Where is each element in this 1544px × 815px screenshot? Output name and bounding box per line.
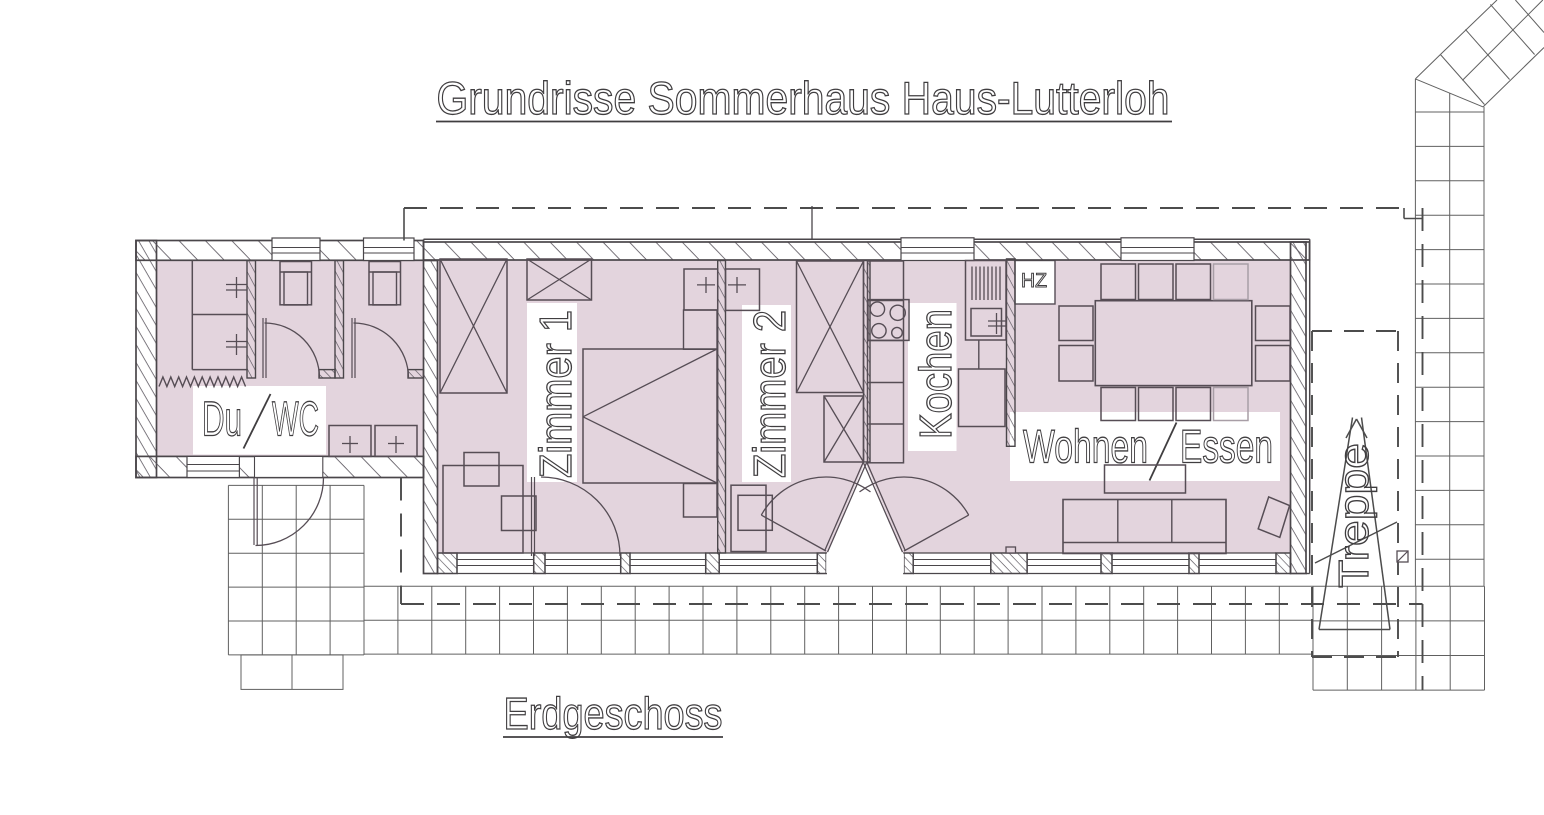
svg-text:Zimmer 1: Zimmer 1 xyxy=(530,310,581,478)
svg-text:Kochen: Kochen xyxy=(910,309,961,439)
svg-text:Zimmer 2: Zimmer 2 xyxy=(744,310,795,478)
svg-text:Erdgeschoss: Erdgeschoss xyxy=(504,688,723,739)
svg-text:HZ: HZ xyxy=(1021,270,1047,292)
svg-text:Essen: Essen xyxy=(1180,420,1273,473)
svg-text:Du: Du xyxy=(202,393,242,447)
svg-text:Grundrisse Sommerhaus Haus-Lut: Grundrisse Sommerhaus Haus-Lutterloh xyxy=(437,72,1170,124)
svg-text:Treppe: Treppe xyxy=(1330,443,1377,588)
svg-text:WC: WC xyxy=(272,393,319,447)
